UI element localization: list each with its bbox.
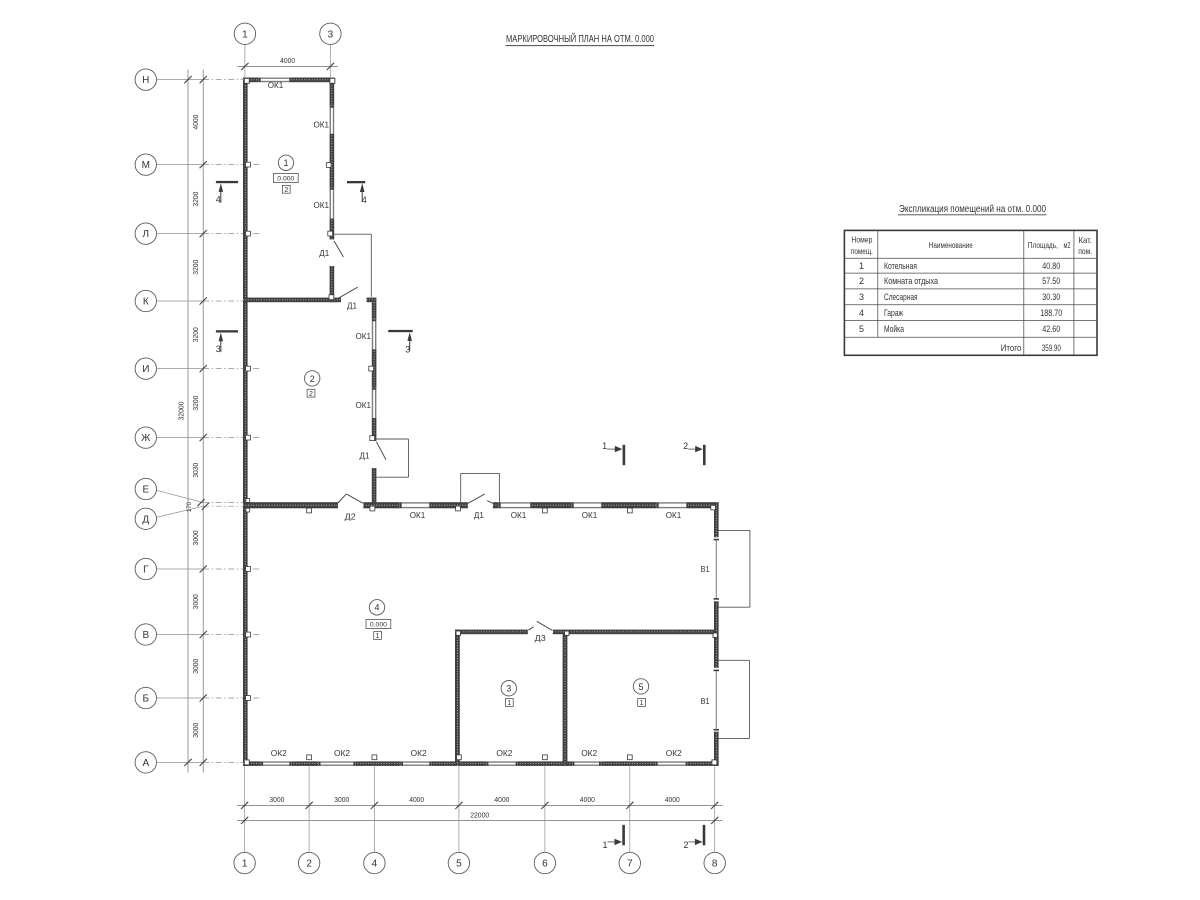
svg-text:Л: Л [143,229,150,240]
svg-text:3: 3 [506,684,511,694]
svg-text:3: 3 [216,344,221,354]
svg-text:помещ.: помещ. [851,246,873,256]
svg-text:Номер: Номер [851,235,872,245]
svg-text:ОК2: ОК2 [334,748,350,758]
svg-text:5: 5 [859,324,864,334]
svg-text:188.70: 188.70 [1040,308,1062,318]
svg-text:В1: В1 [701,696,710,706]
svg-text:А: А [142,758,149,769]
svg-text:Слесарная: Слесарная [884,292,918,302]
svg-text:Гараж: Гараж [884,308,903,318]
svg-text:Б: Б [143,694,150,705]
svg-text:4: 4 [372,859,378,870]
svg-text:ОК1: ОК1 [268,80,284,90]
svg-text:4000: 4000 [665,795,680,804]
svg-text:3030: 3030 [191,463,200,478]
svg-text:3200: 3200 [191,260,200,275]
svg-text:3000: 3000 [191,594,200,609]
svg-text:3000: 3000 [334,795,349,804]
svg-text:В: В [142,630,149,641]
svg-text:3200: 3200 [191,327,200,342]
svg-text:Д1: Д1 [347,300,357,310]
svg-text:1: 1 [283,158,288,168]
svg-text:Площадь,: Площадь, [1028,240,1058,250]
svg-text:Кат.: Кат. [1078,235,1092,245]
svg-text:6: 6 [542,859,548,870]
svg-text:Н: Н [142,75,149,86]
svg-text:42.60: 42.60 [1042,324,1060,334]
svg-text:Мойка: Мойка [884,324,904,334]
svg-text:4000: 4000 [280,56,295,65]
svg-text:ОК2: ОК2 [496,748,512,758]
svg-text:Итого: Итого [1001,343,1022,353]
svg-text:1: 1 [859,261,864,271]
svg-text:Д2: Д2 [345,511,356,521]
svg-text:Д1: Д1 [474,510,484,520]
svg-text:ОК2: ОК2 [411,748,427,758]
svg-text:5: 5 [456,859,462,870]
svg-text:ОК2: ОК2 [666,748,682,758]
svg-text:4000: 4000 [409,795,424,804]
svg-text:Комната отдыха: Комната отдыха [884,276,938,286]
svg-text:3: 3 [328,29,334,40]
svg-text:М: М [142,160,150,171]
svg-text:1: 1 [507,700,511,707]
svg-text:170: 170 [187,501,193,512]
svg-text:Ж: Ж [141,433,151,444]
svg-text:ОК1: ОК1 [314,119,330,129]
svg-text:3000: 3000 [191,659,200,674]
svg-text:30.30: 30.30 [1042,292,1060,302]
svg-text:4000: 4000 [580,795,595,804]
svg-text:ОК1: ОК1 [356,400,372,410]
svg-text:Д3: Д3 [535,633,546,643]
svg-text:40.80: 40.80 [1042,261,1060,271]
svg-text:Наименование: Наименование [929,240,973,250]
svg-text:Д1: Д1 [319,248,329,258]
svg-text:1: 1 [602,441,607,451]
svg-text:3200: 3200 [191,192,200,207]
svg-text:0.000: 0.000 [277,176,294,183]
svg-text:1: 1 [376,633,380,640]
svg-text:3000: 3000 [191,723,200,738]
svg-text:3: 3 [405,344,410,354]
svg-text:4: 4 [374,603,379,613]
svg-text:3200: 3200 [191,396,200,411]
svg-text:5: 5 [638,682,643,692]
svg-text:4: 4 [362,195,367,205]
svg-text:ОК1: ОК1 [582,510,598,520]
svg-text:ОК1: ОК1 [410,510,426,520]
svg-text:3: 3 [859,292,864,302]
svg-text:Котельная: Котельная [884,261,917,271]
svg-text:м2: м2 [1064,240,1071,250]
svg-text:В1: В1 [701,564,710,574]
svg-text:2: 2 [683,441,688,451]
svg-text:4: 4 [216,195,221,205]
svg-text:1: 1 [602,840,607,850]
svg-text:ОК1: ОК1 [511,510,527,520]
svg-text:3000: 3000 [191,530,200,545]
svg-text:2: 2 [310,374,315,384]
svg-text:Е: Е [142,485,149,496]
svg-text:359.90: 359.90 [1042,343,1061,353]
svg-text:Г: Г [143,565,149,576]
svg-text:4: 4 [859,308,864,318]
svg-text:Экспликация помещений на отм.: Экспликация помещений на отм. 0.000 [899,204,1046,215]
svg-text:7: 7 [627,859,633,870]
svg-text:4000: 4000 [191,115,200,130]
svg-text:2: 2 [309,391,313,398]
svg-text:0.000: 0.000 [370,622,387,629]
svg-text:32000: 32000 [176,402,185,421]
svg-text:ОК1: ОК1 [314,200,330,210]
svg-text:ОК2: ОК2 [581,748,597,758]
svg-text:МАРКИРОВОЧНЫЙ ПЛАН НА ОТМ. 0.0: МАРКИРОВОЧНЫЙ ПЛАН НА ОТМ. 0.000 [506,32,654,45]
svg-text:ОК2: ОК2 [271,748,287,758]
svg-text:1: 1 [242,29,248,40]
svg-text:1: 1 [640,700,644,707]
svg-text:2: 2 [683,840,688,850]
svg-text:1: 1 [242,859,248,870]
svg-text:57.50: 57.50 [1042,276,1060,286]
svg-text:8: 8 [712,859,718,870]
svg-text:4000: 4000 [494,795,509,804]
svg-text:3000: 3000 [269,795,284,804]
svg-text:2: 2 [306,859,312,870]
svg-text:2: 2 [284,187,288,194]
svg-text:22000: 22000 [470,810,489,819]
svg-text:И: И [142,364,149,375]
svg-text:К: К [143,297,149,308]
svg-text:Д1: Д1 [360,450,370,460]
svg-text:пом.: пом. [1078,246,1092,256]
svg-text:ОК1: ОК1 [356,331,372,341]
svg-text:ОК1: ОК1 [666,510,682,520]
svg-text:Д: Д [142,514,149,525]
svg-text:2: 2 [859,276,864,286]
